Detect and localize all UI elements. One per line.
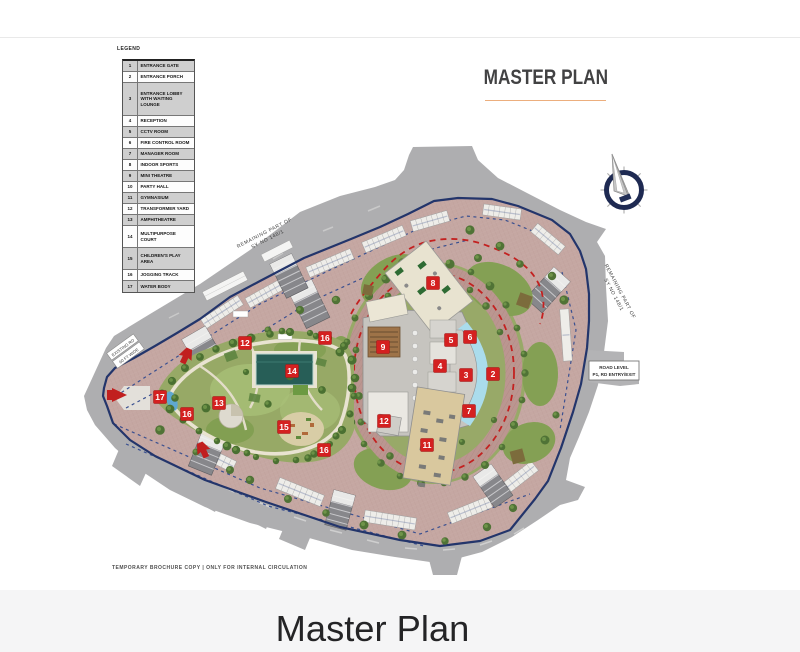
svg-text:P1, RD ENTRY/EXIT: P1, RD ENTRY/EXIT: [593, 372, 636, 377]
svg-text:12: 12: [379, 416, 389, 426]
svg-text:16: 16: [319, 445, 329, 455]
svg-text:8: 8: [431, 278, 436, 288]
svg-text:9: 9: [381, 342, 386, 352]
svg-text:12: 12: [240, 338, 250, 348]
svg-text:14: 14: [287, 366, 297, 376]
svg-text:3: 3: [464, 370, 469, 380]
svg-text:11: 11: [423, 440, 432, 450]
svg-text:13: 13: [214, 398, 224, 408]
svg-text:6: 6: [468, 332, 473, 342]
svg-text:16: 16: [182, 409, 192, 419]
svg-text:ROAD LEVEL: ROAD LEVEL: [599, 365, 629, 370]
svg-text:5: 5: [449, 335, 454, 345]
svg-text:16: 16: [320, 333, 330, 343]
svg-text:4: 4: [438, 361, 443, 371]
svg-text:2: 2: [491, 369, 496, 379]
svg-text:7: 7: [467, 406, 472, 416]
svg-text:15: 15: [279, 422, 289, 432]
svg-text:17: 17: [155, 392, 165, 402]
